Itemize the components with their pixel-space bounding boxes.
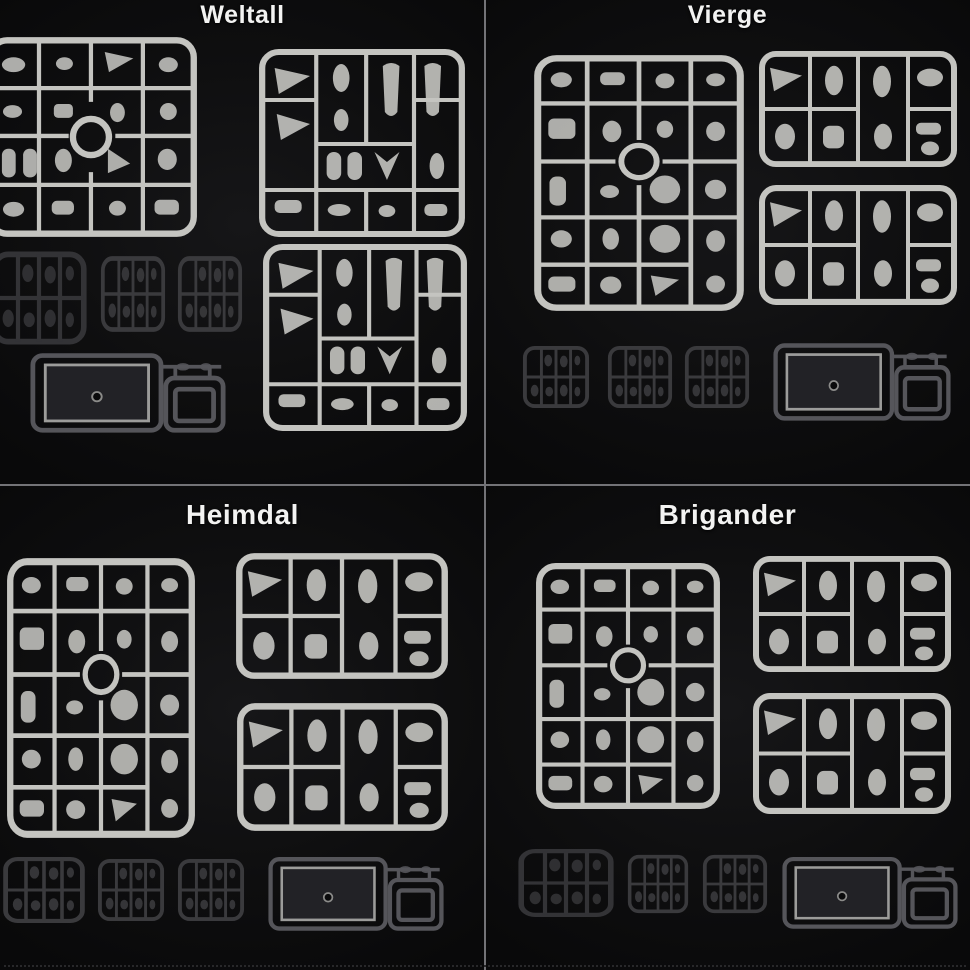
heimdal-clear-runner-3 — [177, 858, 245, 922]
product-photo-grid: Weltall Vierge Heimdal Brigander — [0, 0, 970, 970]
vierge-clear-runner-3 — [684, 345, 750, 409]
weltall-clear-runner-1 — [0, 250, 88, 346]
weltall-detail-runner-2 — [262, 243, 468, 432]
vierge-display-base-runner — [773, 340, 951, 422]
heimdal-detail-runner-2 — [236, 702, 449, 832]
heimdal-display-base-runner — [268, 854, 444, 932]
weltall-main-runner — [0, 36, 198, 238]
weltall-display-base-runner — [30, 350, 226, 434]
brigander-clear-runner-1 — [517, 848, 615, 918]
vierge-detail-runner-2 — [758, 184, 958, 306]
heimdal-clear-runner-2 — [97, 858, 165, 922]
vierge-clear-runner-1 — [522, 345, 590, 409]
brigander-detail-runner-1 — [752, 555, 952, 673]
heimdal-main-runner — [6, 557, 196, 839]
brigander-clear-runner-2 — [627, 854, 689, 914]
horizontal-divider — [0, 484, 970, 486]
heimdal-clear-runner-1 — [2, 856, 86, 924]
kit-title-vierge: Vierge — [485, 1, 970, 30]
brigander-clear-runner-3 — [702, 854, 768, 914]
vierge-main-runner — [533, 54, 745, 312]
bottom-perforation-texture — [4, 965, 966, 967]
weltall-clear-runner-2 — [100, 255, 166, 333]
panel-heimdal: Heimdal — [0, 485, 485, 970]
weltall-clear-runner-3 — [177, 255, 243, 333]
brigander-main-runner — [535, 562, 721, 810]
kit-title-brigander: Brigander — [485, 499, 970, 531]
brigander-display-base-runner — [782, 854, 958, 930]
weltall-detail-runner-1 — [258, 48, 466, 238]
vierge-clear-runner-2 — [607, 345, 673, 409]
kit-title-weltall: Weltall — [0, 1, 485, 30]
panel-brigander: Brigander — [485, 485, 970, 970]
brigander-detail-runner-2 — [752, 692, 952, 815]
panel-vierge: Vierge — [485, 0, 970, 485]
kit-title-heimdal: Heimdal — [0, 499, 485, 531]
panel-weltall: Weltall — [0, 0, 485, 485]
heimdal-detail-runner-1 — [235, 552, 449, 680]
vierge-detail-runner-1 — [758, 50, 958, 168]
